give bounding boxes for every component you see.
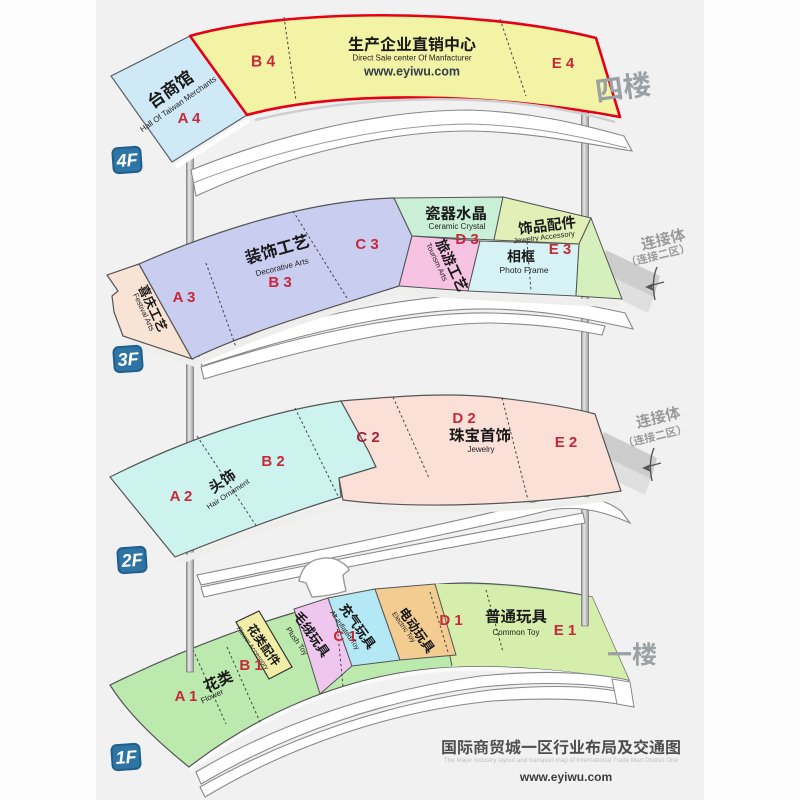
svg-text:C 3: C 3 <box>355 236 378 253</box>
svg-text:3F: 3F <box>117 349 140 370</box>
svg-text:E 3: E 3 <box>549 241 572 258</box>
svg-text:Direct Sale center Of Manfactu: Direct Sale center Of Manfacturer <box>352 53 471 62</box>
svg-text:The Major Industry layout and: The Major Industry layout and transport … <box>444 757 679 764</box>
svg-text:Jewelry: Jewelry <box>467 445 494 454</box>
svg-text:E 1: E 1 <box>554 622 577 639</box>
svg-text:E 4: E 4 <box>552 55 575 72</box>
svg-text:www.eyiwu.com: www.eyiwu.com <box>519 770 612 784</box>
svg-text:D 1: D 1 <box>439 612 462 629</box>
svg-text:B 2: B 2 <box>261 453 284 470</box>
svg-text:1F: 1F <box>115 747 138 768</box>
svg-text:4F: 4F <box>115 150 139 172</box>
svg-text:A 3: A 3 <box>173 289 196 306</box>
svg-text:A 1: A 1 <box>175 688 198 705</box>
svg-text:C 2: C 2 <box>356 429 379 446</box>
svg-text:www.eyiwu.com: www.eyiwu.com <box>363 64 460 78</box>
svg-text:Common Toy: Common Toy <box>493 628 540 637</box>
svg-text:A 4: A 4 <box>178 110 201 127</box>
svg-text:2F: 2F <box>120 550 144 572</box>
svg-text:B 4: B 4 <box>251 53 276 70</box>
svg-text:E 2: E 2 <box>555 434 578 451</box>
svg-text:B 3: B 3 <box>268 274 291 291</box>
svg-text:A 2: A 2 <box>170 488 193 505</box>
svg-text:Ceramic Crystal: Ceramic Crystal <box>429 222 486 231</box>
svg-text:D 3: D 3 <box>455 231 478 248</box>
svg-text:D 2: D 2 <box>452 410 475 427</box>
svg-text:Photo Frame: Photo Frame <box>499 265 548 275</box>
